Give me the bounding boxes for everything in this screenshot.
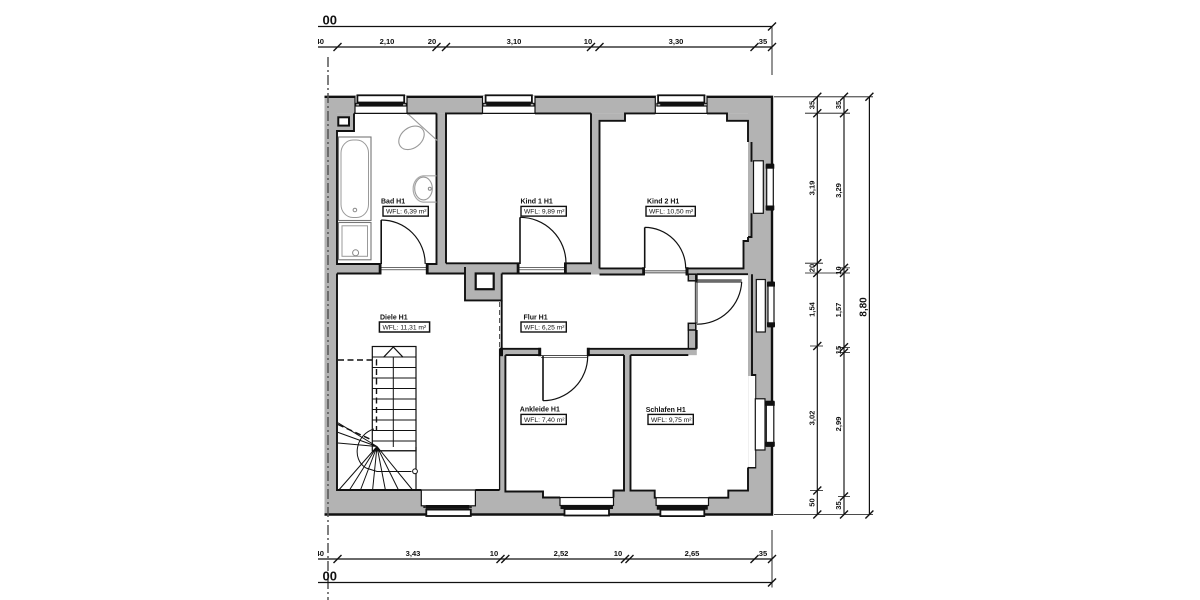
- svg-text:35: 35: [834, 501, 843, 510]
- svg-text:WFL: 7,40 m²: WFL: 7,40 m²: [524, 417, 565, 424]
- svg-text:WFL: 10,50 m²: WFL: 10,50 m²: [649, 209, 694, 216]
- svg-text:3,10: 3,10: [507, 37, 522, 46]
- svg-text:35: 35: [834, 100, 843, 109]
- svg-text:1,57: 1,57: [834, 303, 843, 318]
- svg-text:Diele H1: Diele H1: [380, 315, 408, 322]
- svg-text:2,10: 2,10: [380, 37, 395, 46]
- svg-text:15: 15: [834, 345, 843, 354]
- svg-text:35: 35: [807, 100, 816, 109]
- svg-text:10: 10: [614, 549, 622, 558]
- svg-text:WFL: 6,39 m²: WFL: 6,39 m²: [386, 209, 427, 216]
- svg-text:2,52: 2,52: [554, 549, 569, 558]
- svg-text:35: 35: [759, 37, 768, 46]
- svg-text:3,30: 3,30: [669, 37, 684, 46]
- svg-text:Ankleide H1: Ankleide H1: [520, 407, 560, 414]
- svg-text:WFL: 11,31 m²: WFL: 11,31 m²: [383, 325, 427, 332]
- svg-text:3,02: 3,02: [807, 411, 816, 426]
- svg-text:2,65: 2,65: [685, 549, 701, 558]
- svg-text:00: 00: [323, 569, 337, 584]
- svg-text:1,54: 1,54: [807, 301, 816, 317]
- svg-text:3,43: 3,43: [406, 549, 421, 558]
- svg-text:20: 20: [807, 264, 816, 272]
- svg-text:WFL: 9,89 m²: WFL: 9,89 m²: [524, 209, 565, 216]
- svg-text:Flur H1: Flur H1: [524, 315, 548, 322]
- svg-text:3,19: 3,19: [807, 181, 816, 196]
- svg-text:10: 10: [834, 266, 843, 274]
- svg-text:2,99: 2,99: [834, 417, 843, 432]
- svg-text:20: 20: [428, 37, 436, 46]
- svg-text:Kind 1 H1: Kind 1 H1: [521, 199, 553, 206]
- svg-text:WFL: 6,25 m²: WFL: 6,25 m²: [524, 325, 565, 332]
- svg-text:Schlafen H1: Schlafen H1: [646, 407, 686, 414]
- svg-text:Kind 2 H1: Kind 2 H1: [647, 199, 679, 206]
- svg-text:50: 50: [807, 498, 816, 506]
- svg-text:8,80: 8,80: [858, 297, 869, 317]
- svg-text:3,29: 3,29: [834, 183, 843, 198]
- svg-text:00: 00: [323, 13, 337, 28]
- svg-text:Bad H1: Bad H1: [381, 199, 405, 206]
- svg-text:10: 10: [490, 549, 498, 558]
- svg-text:WFL: 9,75 m²: WFL: 9,75 m²: [651, 417, 692, 424]
- svg-text:10: 10: [584, 37, 592, 46]
- svg-text:35: 35: [759, 549, 768, 558]
